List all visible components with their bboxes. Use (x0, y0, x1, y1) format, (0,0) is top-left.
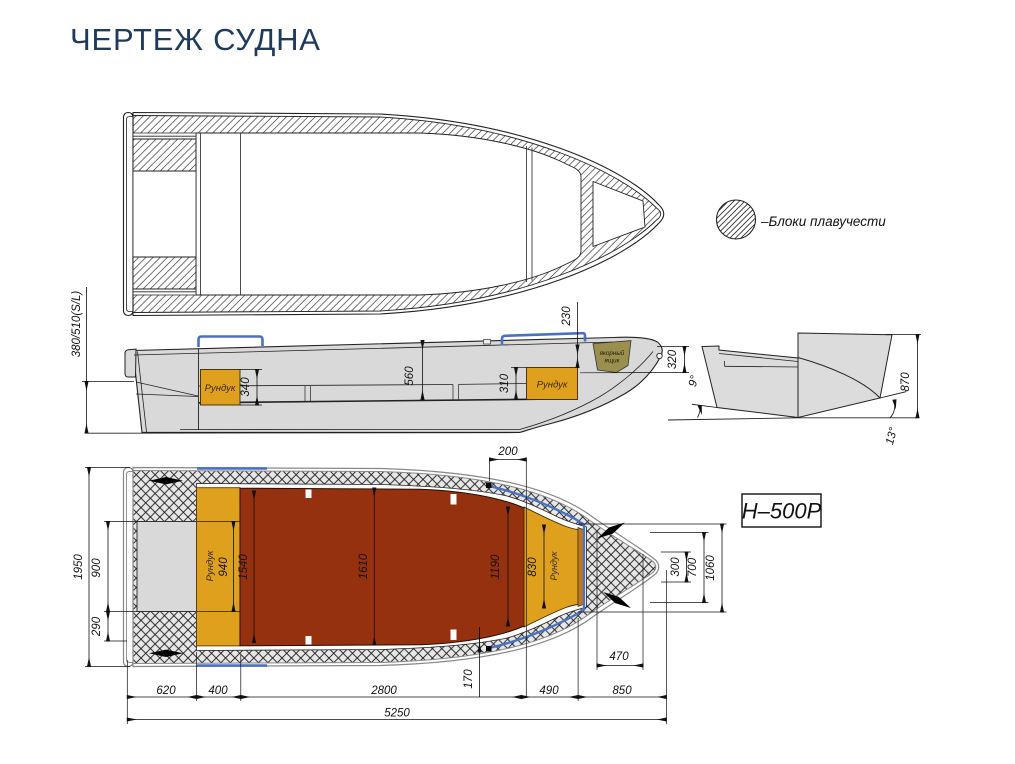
svg-text:470: 470 (609, 651, 629, 663)
svg-text:1060: 1060 (705, 555, 717, 581)
svg-text:1950: 1950 (73, 554, 85, 580)
svg-text:400: 400 (208, 685, 228, 697)
svg-text:1190: 1190 (490, 554, 502, 579)
svg-text:380/510(S/L): 380/510(S/L) (71, 291, 83, 358)
svg-text:490: 490 (539, 685, 559, 697)
svg-text:Н–500Р: Н–500Р (742, 499, 822, 524)
svg-text:Рундук: Рундук (205, 550, 216, 581)
svg-text:5250: 5250 (384, 708, 410, 720)
svg-text:870: 870 (900, 372, 912, 392)
svg-text:2800: 2800 (370, 685, 397, 697)
svg-text:560: 560 (404, 366, 416, 386)
svg-text:620: 620 (156, 685, 176, 697)
svg-text:320: 320 (667, 349, 679, 369)
svg-text:якорный: якорный (599, 350, 625, 357)
svg-text:1540: 1540 (238, 554, 250, 580)
svg-text:1610: 1610 (358, 553, 370, 579)
svg-text:170: 170 (463, 669, 475, 689)
svg-text:200: 200 (497, 446, 518, 458)
svg-text:830: 830 (527, 557, 539, 577)
svg-text:310: 310 (499, 373, 511, 393)
svg-text:ЧЕРТЕЖ СУДНА: ЧЕРТЕЖ СУДНА (70, 22, 321, 57)
svg-text:340: 340 (240, 377, 252, 397)
svg-text:230: 230 (561, 306, 573, 327)
svg-text:Рундук: Рундук (205, 383, 236, 394)
svg-text:ящик: ящик (604, 358, 621, 365)
svg-text:900: 900 (91, 558, 103, 578)
svg-text:290: 290 (91, 616, 103, 637)
svg-text:300: 300 (670, 557, 682, 577)
svg-text:940: 940 (218, 557, 230, 577)
svg-text:850: 850 (612, 685, 632, 697)
svg-text:Рундук: Рундук (537, 380, 568, 391)
svg-text:–Блоки плавучести: –Блоки плавучести (760, 214, 886, 229)
svg-text:Рундук: Рундук (549, 551, 559, 581)
svg-text:700: 700 (687, 557, 699, 577)
